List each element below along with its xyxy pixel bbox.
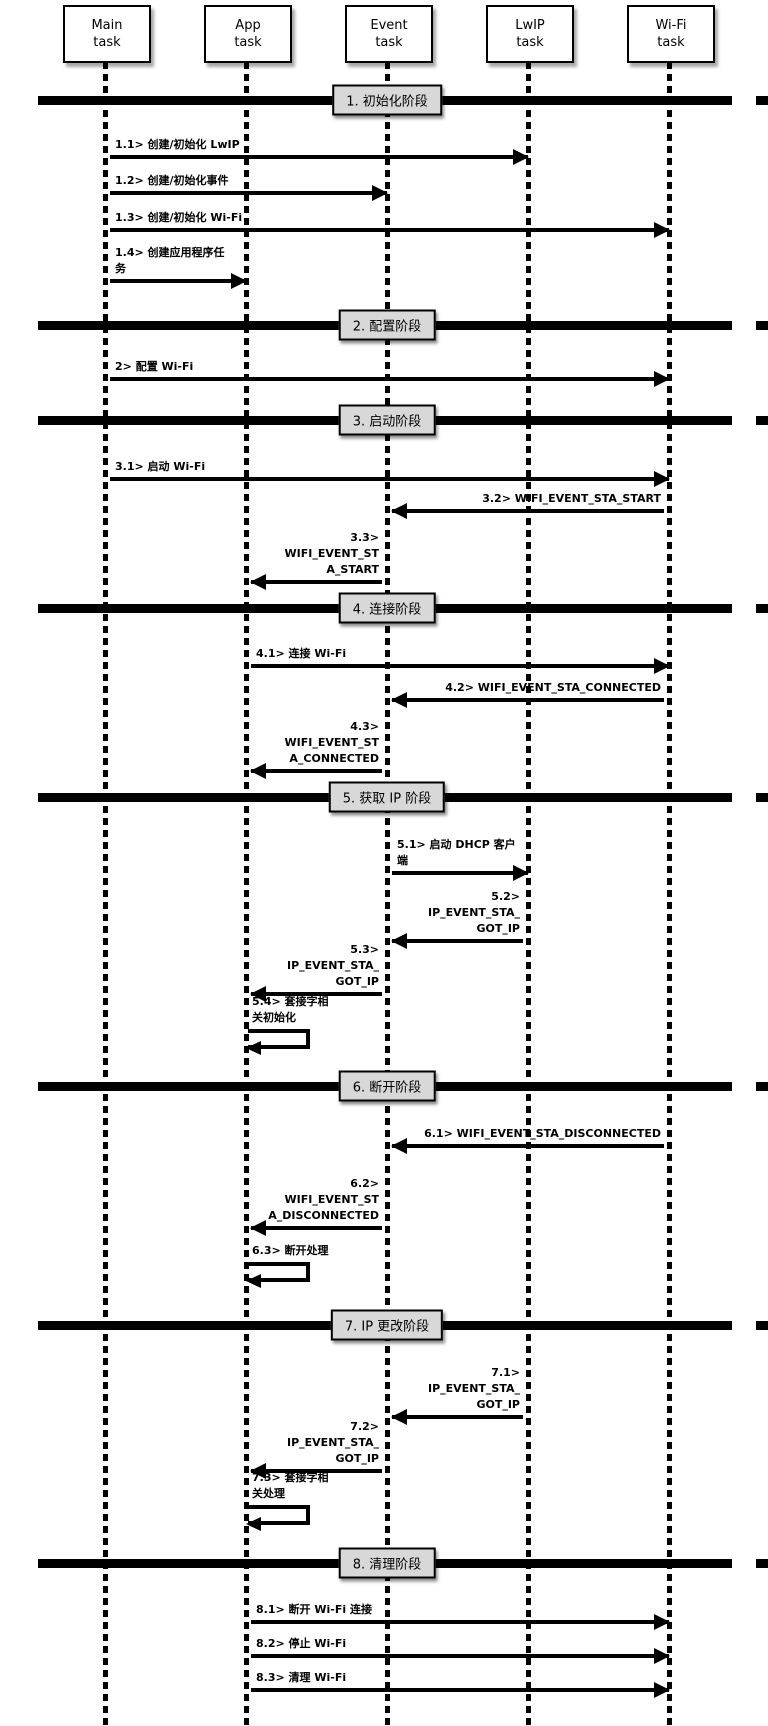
message-5-1: 5.1> 启动 DHCP 客户 端 [392, 837, 528, 875]
lifeline-main-task [103, 62, 108, 1726]
phase-bar-4-stub [756, 604, 768, 613]
arrowhead-left-icon [391, 1138, 407, 1154]
message-arrow [110, 228, 669, 232]
message-7-3: 7.3> 套接字相 关处理 [248, 1470, 368, 1525]
message-label: 7.1> IP_EVENT_STA_ GOT_IP [392, 1365, 523, 1414]
phase-label-4: 4. 连接阶段 [339, 593, 436, 624]
message-arrow [110, 477, 669, 481]
message-label: 1.4> 创建应用程序任 务 [110, 245, 246, 278]
phase-bar-1-stub [756, 96, 768, 105]
message-6-2: 6.2> WIFI_EVENT_ST A_DISCONNECTED [251, 1176, 382, 1230]
arrowhead-left-icon [391, 503, 407, 519]
actor-box-main-task: Main task [63, 5, 151, 63]
message-label: 4.2> WIFI_EVENT_STA_CONNECTED [392, 680, 664, 697]
message-arrow [110, 279, 246, 283]
lifeline-lwip-task [526, 62, 531, 1726]
arrowhead-right-icon [654, 1614, 670, 1630]
message-arrow [110, 191, 387, 195]
message-label: 6.1> WIFI_EVENT_STA_DISCONNECTED [392, 1126, 664, 1143]
arrowhead-left-icon [246, 1274, 261, 1288]
message-arrow [110, 377, 669, 381]
message-arrow [392, 698, 664, 702]
message-2: 2> 配置 Wi-Fi [110, 359, 669, 381]
arrowhead-left-icon [391, 1409, 407, 1425]
phase-bar-6-stub [756, 1082, 768, 1091]
message-label: 2> 配置 Wi-Fi [110, 359, 669, 376]
message-3-3: 3.3> WIFI_EVENT_ST A_START [251, 530, 382, 584]
message-8-1: 8.1> 断开 Wi-Fi 连接 [251, 1602, 669, 1624]
arrowhead-left-icon [250, 1220, 266, 1236]
message-label: 8.1> 断开 Wi-Fi 连接 [251, 1602, 669, 1619]
message-6-3: 6.3> 断开处理 [248, 1243, 368, 1282]
phase-bar-8-stub [756, 1559, 768, 1568]
message-label: 7.2> IP_EVENT_STA_ GOT_IP [251, 1419, 382, 1468]
arrowhead-right-icon [513, 865, 529, 881]
phase-label-6: 6. 断开阶段 [339, 1071, 436, 1102]
actor-box-app-task: App task [204, 5, 292, 63]
message-8-3: 8.3> 清理 Wi-Fi [251, 1670, 669, 1692]
message-1-2: 1.2> 创建/初始化事件 [110, 173, 387, 195]
message-7-1: 7.1> IP_EVENT_STA_ GOT_IP [392, 1365, 523, 1419]
message-label: 8.3> 清理 Wi-Fi [251, 1670, 669, 1687]
message-6-1: 6.1> WIFI_EVENT_STA_DISCONNECTED [392, 1126, 664, 1148]
arrowhead-right-icon [654, 471, 670, 487]
message-label: 3.1> 启动 Wi-Fi [110, 459, 669, 476]
arrowhead-right-icon [654, 222, 670, 238]
message-arrow [251, 1226, 382, 1230]
phase-bar-2-stub [756, 321, 768, 330]
message-arrow [251, 769, 382, 773]
arrowhead-right-icon [372, 185, 388, 201]
arrowhead-left-icon [391, 692, 407, 708]
message-arrow [110, 155, 528, 159]
message-arrow [251, 1654, 669, 1658]
message-1-1: 1.1> 创建/初始化 LwIP [110, 137, 528, 159]
message-arrow [392, 871, 528, 875]
message-7-2: 7.2> IP_EVENT_STA_ GOT_IP [251, 1419, 382, 1473]
message-1-4: 1.4> 创建应用程序任 务 [110, 245, 246, 283]
message-label: 6.2> WIFI_EVENT_ST A_DISCONNECTED [251, 1176, 382, 1225]
arrowhead-right-icon [654, 1682, 670, 1698]
message-5-3: 5.3> IP_EVENT_STA_ GOT_IP [251, 942, 382, 996]
message-arrow [392, 509, 664, 513]
arrowhead-right-icon [231, 273, 247, 289]
arrowhead-right-icon [513, 149, 529, 165]
phase-label-2: 2. 配置阶段 [339, 310, 436, 341]
arrowhead-left-icon [250, 574, 266, 590]
arrowhead-right-icon [654, 1648, 670, 1664]
self-message-loop [248, 1029, 310, 1049]
message-label: 4.3> WIFI_EVENT_ST A_CONNECTED [251, 719, 382, 768]
self-message-loop [248, 1262, 310, 1282]
message-8-2: 8.2> 停止 Wi-Fi [251, 1636, 669, 1658]
message-3-2: 3.2> WIFI_EVENT_STA_START [392, 491, 664, 513]
message-5-4: 5.4> 套接字相 关初始化 [248, 994, 368, 1049]
message-arrow [251, 1688, 669, 1692]
message-label: 1.2> 创建/初始化事件 [110, 173, 387, 190]
message-1-3: 1.3> 创建/初始化 Wi-Fi [110, 210, 669, 232]
actor-box-wifi-task: Wi-Fi task [627, 5, 715, 63]
message-label: 5.3> IP_EVENT_STA_ GOT_IP [251, 942, 382, 991]
message-label: 5.1> 启动 DHCP 客户 端 [392, 837, 528, 870]
phase-bar-3-stub [756, 416, 768, 425]
phase-label-3: 3. 启动阶段 [339, 405, 436, 436]
phase-bar-7-stub [756, 1321, 768, 1330]
message-4-3: 4.3> WIFI_EVENT_ST A_CONNECTED [251, 719, 382, 773]
message-arrow [392, 1144, 664, 1148]
message-label: 1.3> 创建/初始化 Wi-Fi [110, 210, 669, 227]
lifeline-wifi-task [667, 62, 672, 1726]
message-arrow [392, 1415, 523, 1419]
arrowhead-left-icon [391, 933, 407, 949]
arrowhead-left-icon [246, 1517, 261, 1531]
message-arrow [392, 939, 523, 943]
message-label: 6.3> 断开处理 [248, 1243, 368, 1260]
message-label: 5.4> 套接字相 关初始化 [248, 994, 368, 1027]
arrowhead-left-icon [246, 1041, 261, 1055]
message-4-2: 4.2> WIFI_EVENT_STA_CONNECTED [392, 680, 664, 702]
message-label: 1.1> 创建/初始化 LwIP [110, 137, 528, 154]
message-arrow [251, 664, 669, 668]
message-label: 4.1> 连接 Wi-Fi [251, 646, 669, 663]
message-4-1: 4.1> 连接 Wi-Fi [251, 646, 669, 668]
message-5-2: 5.2> IP_EVENT_STA_ GOT_IP [392, 889, 523, 943]
message-label: 3.3> WIFI_EVENT_ST A_START [251, 530, 382, 579]
self-message-loop [248, 1505, 310, 1525]
arrowhead-right-icon [654, 658, 670, 674]
message-label: 7.3> 套接字相 关处理 [248, 1470, 368, 1503]
phase-bar-5-stub [756, 793, 768, 802]
message-label: 5.2> IP_EVENT_STA_ GOT_IP [392, 889, 523, 938]
phase-label-8: 8. 清理阶段 [339, 1548, 436, 1579]
message-arrow [251, 580, 382, 584]
message-3-1: 3.1> 启动 Wi-Fi [110, 459, 669, 481]
message-label: 8.2> 停止 Wi-Fi [251, 1636, 669, 1653]
sequence-diagram: Main task App task Event task LwIP task … [0, 0, 768, 1726]
actor-box-event-task: Event task [345, 5, 433, 63]
message-label: 3.2> WIFI_EVENT_STA_START [392, 491, 664, 508]
arrowhead-left-icon [250, 763, 266, 779]
phase-label-5: 5. 获取 IP 阶段 [329, 782, 445, 813]
actor-box-lwip-task: LwIP task [486, 5, 574, 63]
phase-label-1: 1. 初始化阶段 [332, 85, 442, 116]
phase-label-7: 7. IP 更改阶段 [331, 1310, 443, 1341]
message-arrow [251, 1620, 669, 1624]
arrowhead-right-icon [654, 371, 670, 387]
